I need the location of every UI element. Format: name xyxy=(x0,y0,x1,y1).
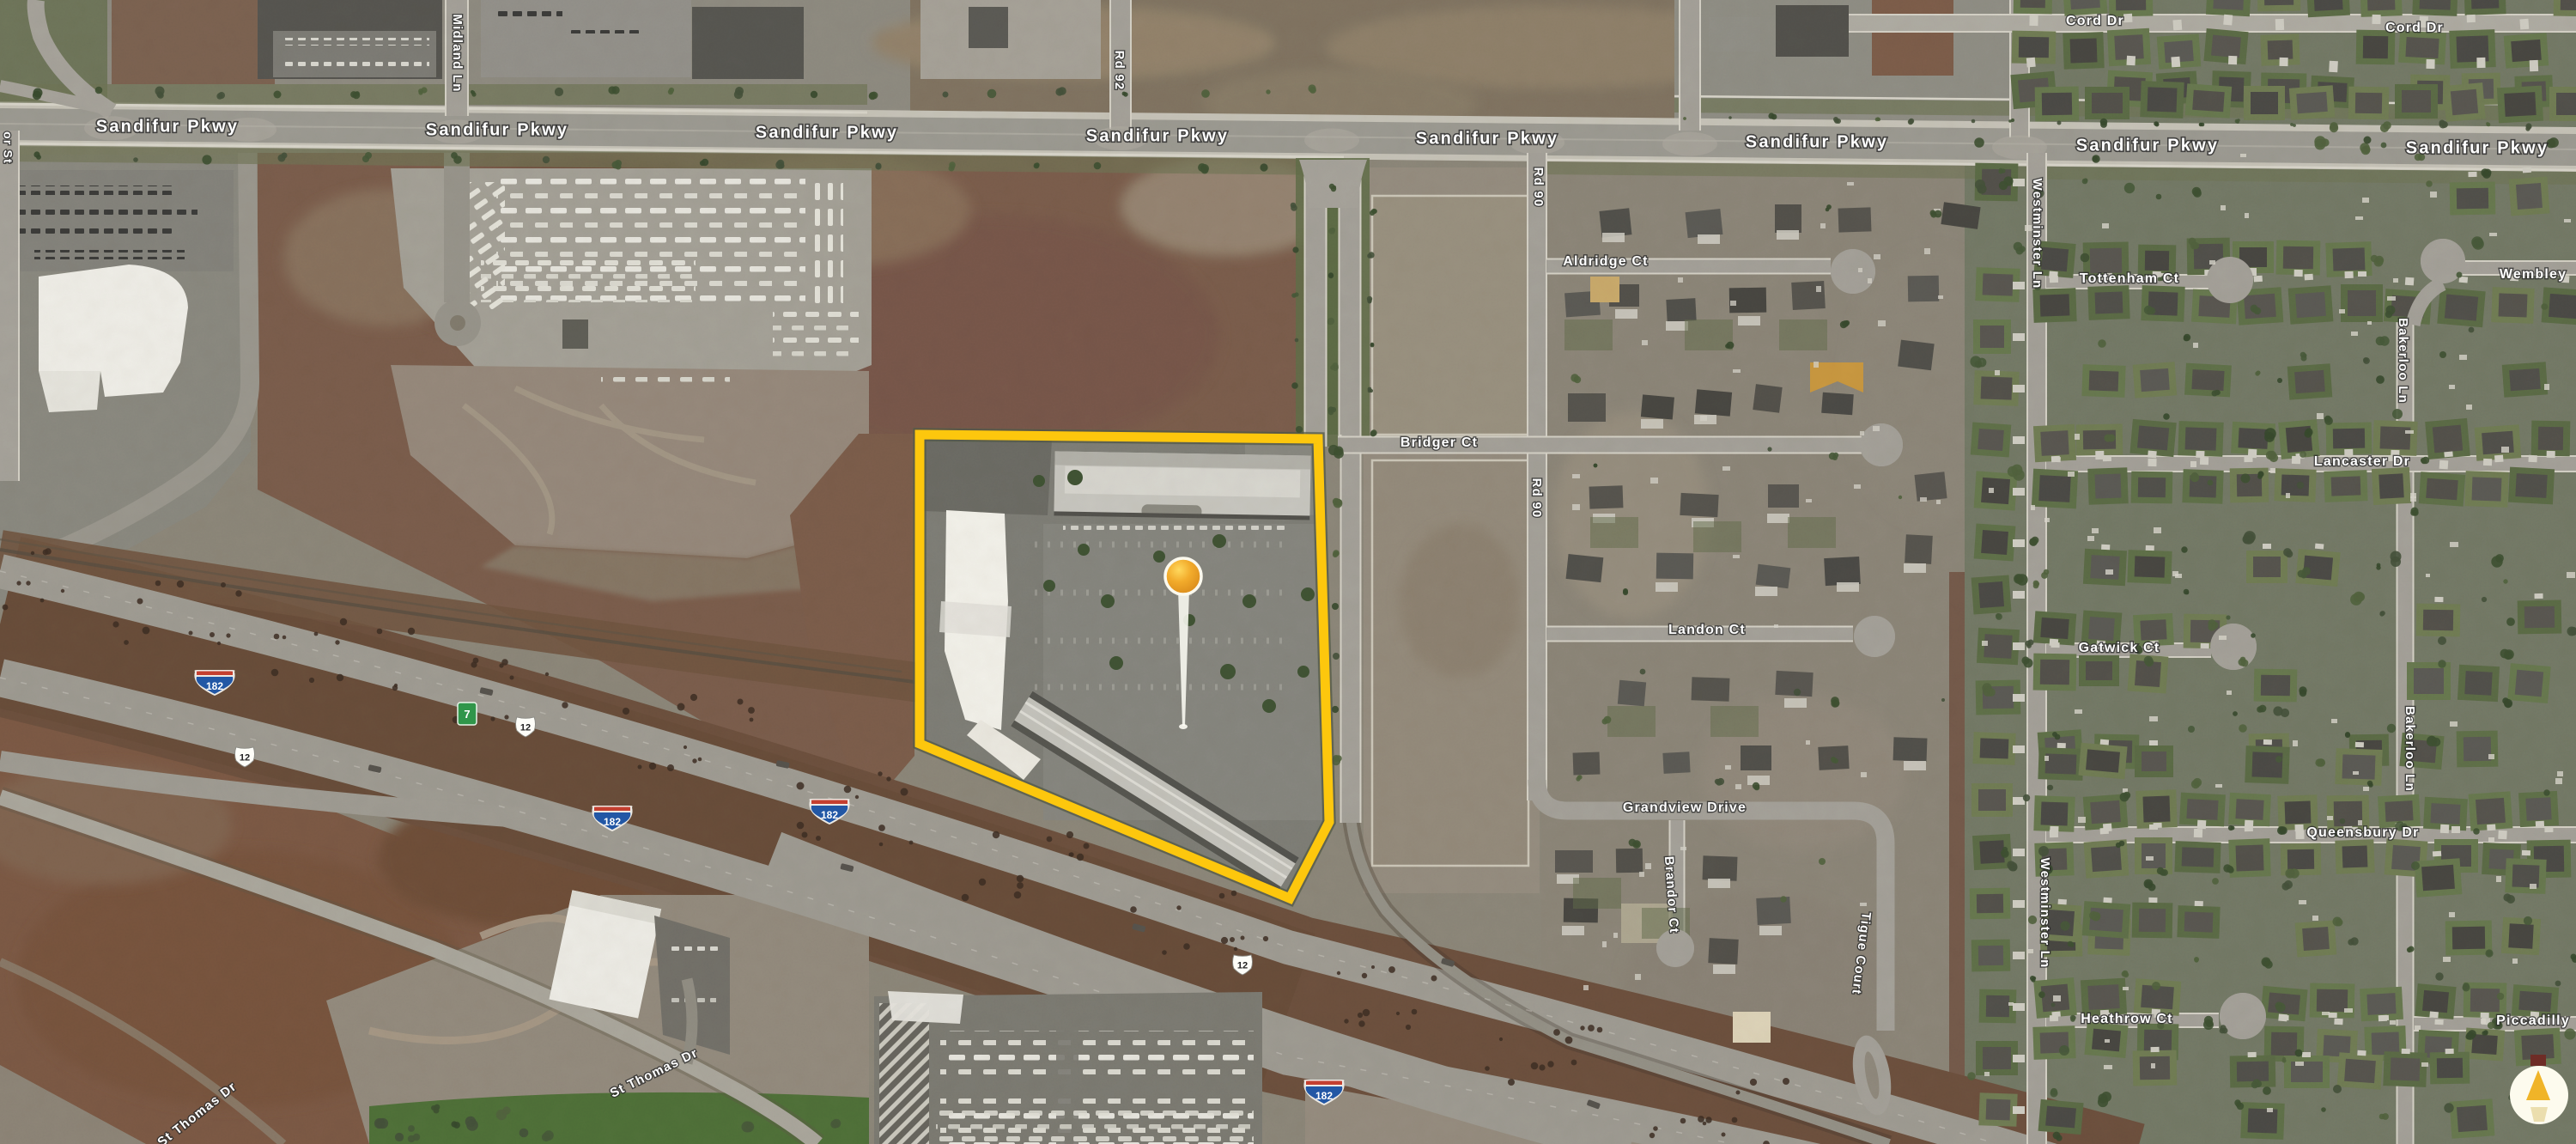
svg-text:Sandifur Pkwy: Sandifur Pkwy xyxy=(1746,132,1888,151)
svg-text:Landon Ct: Landon Ct xyxy=(1668,623,1746,637)
svg-text:Grandview Drive: Grandview Drive xyxy=(1623,800,1747,815)
svg-text:Sandifur Pkwy: Sandifur Pkwy xyxy=(426,120,568,139)
svg-text:Piccadilly: Piccadilly xyxy=(2496,1013,2570,1028)
svg-text:Wembley: Wembley xyxy=(2500,267,2567,282)
svg-text:Rd 92: Rd 92 xyxy=(1112,51,1127,91)
svg-text:Sandifur Pkwy: Sandifur Pkwy xyxy=(2076,136,2219,155)
svg-text:Rd 90: Rd 90 xyxy=(1529,478,1544,519)
svg-text:7: 7 xyxy=(464,708,470,721)
svg-text:Sandifur Pkwy: Sandifur Pkwy xyxy=(1416,129,1558,148)
svg-text:182: 182 xyxy=(206,680,223,692)
svg-text:Queensbury Dr: Queensbury Dr xyxy=(2306,825,2419,840)
svg-text:Aldridge Ct: Aldridge Ct xyxy=(1563,254,1648,269)
svg-text:182: 182 xyxy=(604,816,621,828)
svg-text:12: 12 xyxy=(1237,961,1248,971)
svg-text:Bridger Ct: Bridger Ct xyxy=(1400,435,1478,450)
svg-text:Westminster Ln: Westminster Ln xyxy=(2030,178,2044,289)
svg-text:Cord Dr: Cord Dr xyxy=(2066,14,2124,28)
svg-text:12: 12 xyxy=(520,723,531,733)
svg-text:12: 12 xyxy=(240,753,250,764)
svg-text:182: 182 xyxy=(1315,1090,1333,1102)
svg-text:Bakerloo Ln: Bakerloo Ln xyxy=(2403,706,2417,792)
svg-text:Rd 90: Rd 90 xyxy=(1531,167,1546,208)
svg-text:Sandifur Pkwy: Sandifur Pkwy xyxy=(2406,138,2549,157)
svg-text:Bakerloo Ln: Bakerloo Ln xyxy=(2396,318,2410,404)
svg-text:Sandifur Pkwy: Sandifur Pkwy xyxy=(96,117,239,136)
svg-text:Gatwick Ct: Gatwick Ct xyxy=(2079,641,2160,655)
svg-text:Heathrow Ct: Heathrow Ct xyxy=(2081,1012,2172,1026)
svg-text:or St: or St xyxy=(1,131,15,164)
svg-text:Midland Ln: Midland Ln xyxy=(450,14,465,92)
svg-text:Sandifur Pkwy: Sandifur Pkwy xyxy=(756,123,898,142)
svg-text:Tottenham Ct: Tottenham Ct xyxy=(2080,271,2179,286)
svg-text:Lancaster Dr: Lancaster Dr xyxy=(2314,454,2410,469)
svg-text:Sandifur Pkwy: Sandifur Pkwy xyxy=(1086,126,1229,145)
svg-text:Westminster Ln: Westminster Ln xyxy=(2038,857,2052,968)
svg-text:Cord Dr: Cord Dr xyxy=(2385,21,2444,35)
svg-text:182: 182 xyxy=(821,809,838,821)
